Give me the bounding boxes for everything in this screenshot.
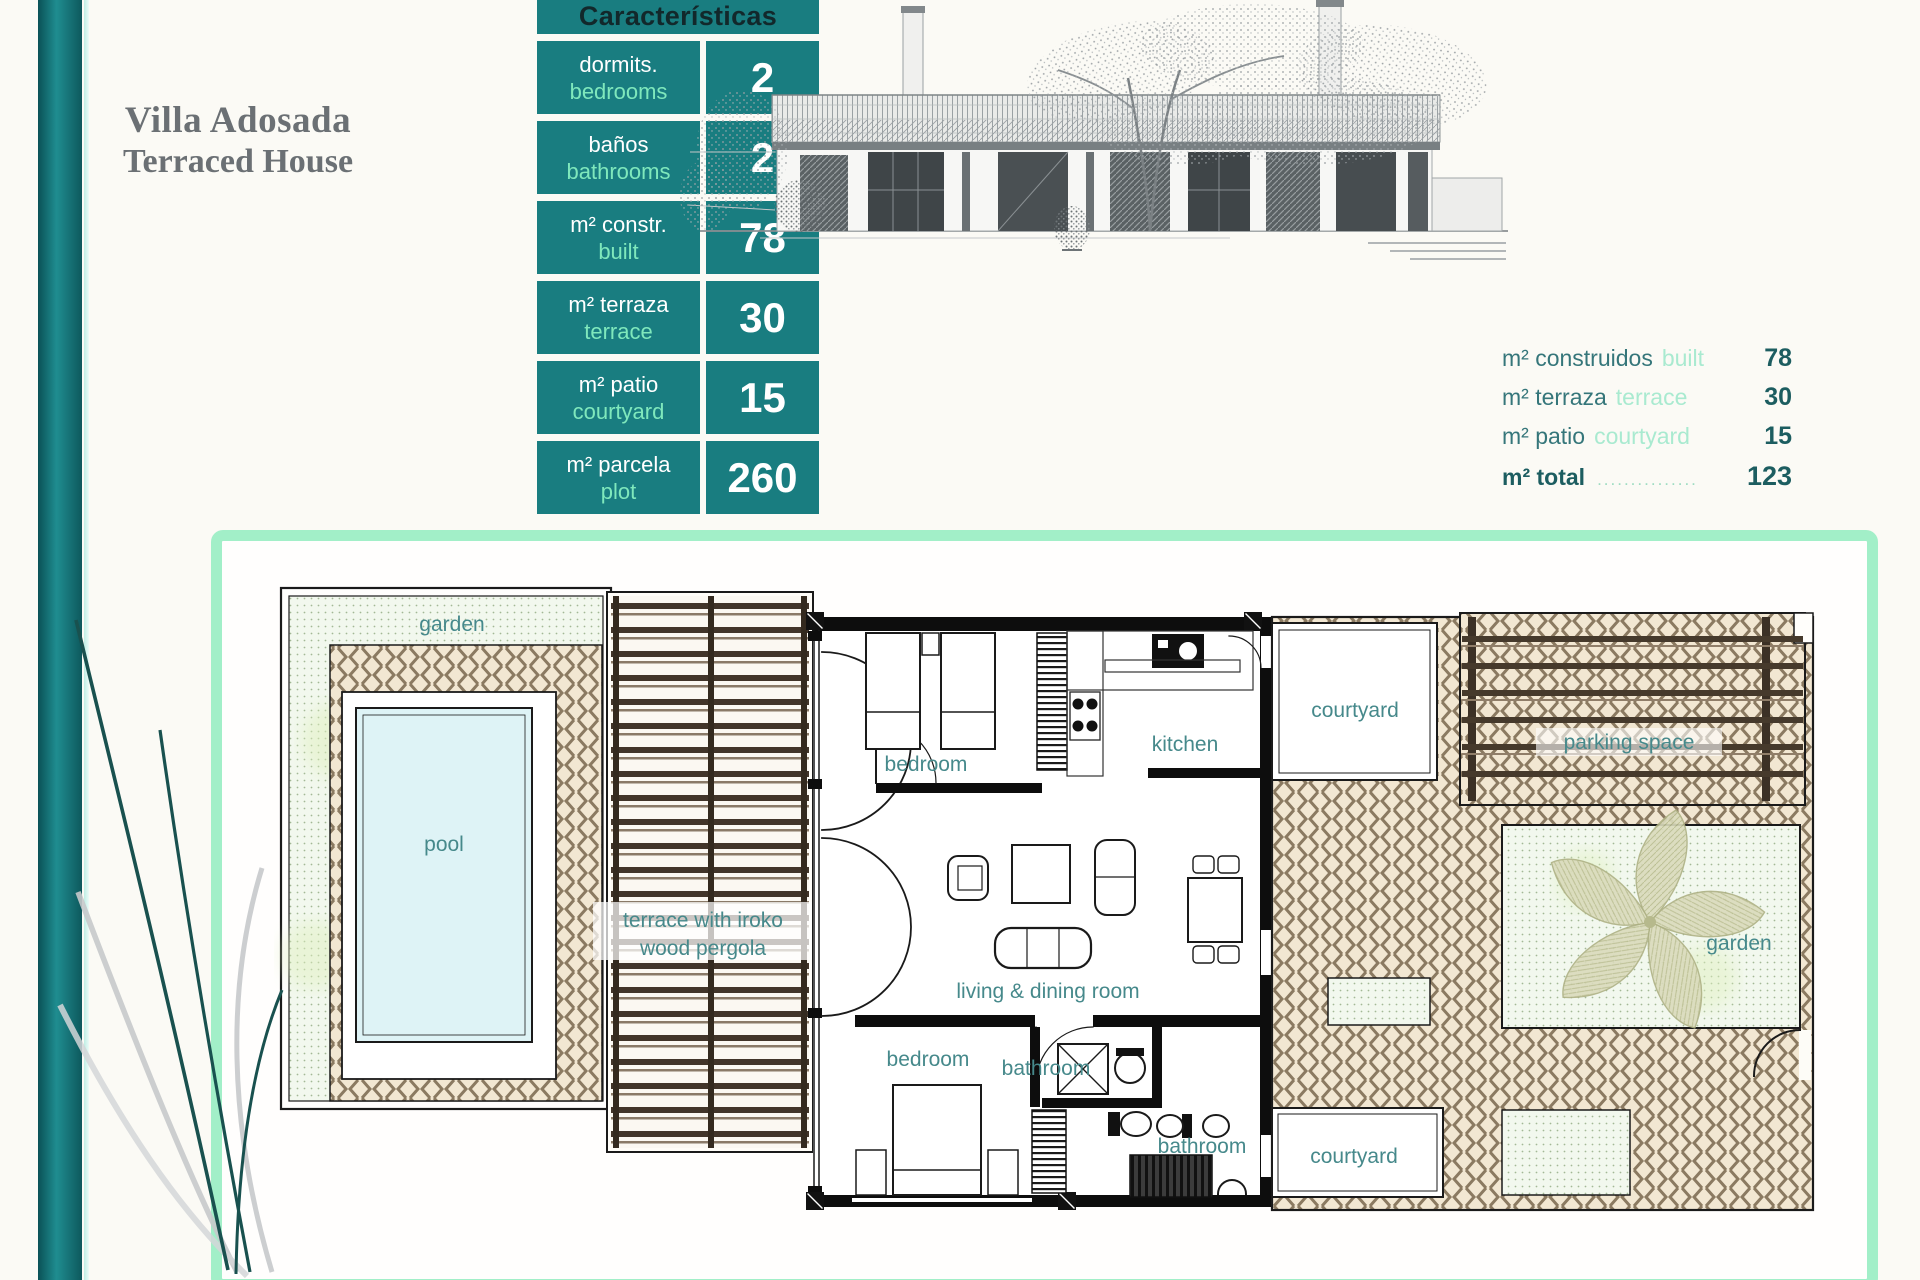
row-label-es: dormits. <box>537 51 700 78</box>
summary-value: 15 <box>1764 422 1792 451</box>
row-value: 2 <box>706 41 819 114</box>
summary-value: 78 <box>1764 344 1792 373</box>
table-row-bathrooms: baños bathrooms 2 <box>537 121 819 194</box>
row-label-en: built <box>537 238 700 265</box>
features-table: Características dormits. bedrooms 2 baño… <box>537 0 819 514</box>
summary-row-total: m² total ............... 123 <box>1502 461 1792 500</box>
summary-value: 30 <box>1764 383 1792 412</box>
row-label-es: m² patio <box>537 371 700 398</box>
row-label-en: courtyard <box>537 398 700 425</box>
row-label-en: bedrooms <box>537 78 700 105</box>
floor-plan-frame <box>211 530 1878 1280</box>
row-value: 260 <box>706 441 819 514</box>
summary-value: 123 <box>1747 461 1792 492</box>
row-label: baños bathrooms <box>537 121 700 194</box>
row-label-es: baños <box>537 131 700 158</box>
table-row-courtyard: m² patio courtyard 15 <box>537 361 819 434</box>
summary-label-en: built <box>1662 345 1704 372</box>
row-label-en: plot <box>537 478 700 505</box>
table-row-built: m² constr. built 78 <box>537 201 819 274</box>
table-row-plot: m² parcela plot 260 <box>537 441 819 514</box>
row-label: m² constr. built <box>537 201 700 274</box>
row-value: 78 <box>706 201 819 274</box>
table-row-bedrooms: dormits. bedrooms 2 <box>537 41 819 114</box>
brochure-page: Villa Adosada Terraced House Característ… <box>0 0 1920 1280</box>
row-label-es: m² terraza <box>537 291 700 318</box>
summary-row-courtyard: m² patio courtyard 15 <box>1502 422 1792 461</box>
summary-label-es: m² total <box>1502 464 1585 491</box>
area-summary: m² construidos built 78 m² terraza terra… <box>1502 344 1792 500</box>
summary-label-en: courtyard <box>1594 423 1690 450</box>
summary-label-en: terrace <box>1616 384 1688 411</box>
row-label: m² patio courtyard <box>537 361 700 434</box>
page-title: Villa Adosada Terraced House <box>88 100 388 182</box>
row-label-es: m² parcela <box>537 451 700 478</box>
page-title-english: Terraced House <box>88 142 388 182</box>
row-label: m² parcela plot <box>537 441 700 514</box>
features-table-header: Características <box>537 0 819 34</box>
row-value: 2 <box>706 121 819 194</box>
summary-label-es: m² terraza <box>1502 384 1607 411</box>
left-accent-bar <box>38 0 82 1280</box>
row-value: 15 <box>706 361 819 434</box>
summary-label-es: m² construidos <box>1502 345 1653 372</box>
row-label-en: bathrooms <box>537 158 700 185</box>
summary-label-es: m² patio <box>1502 423 1585 450</box>
dotted-leader: ............... <box>1597 470 1698 490</box>
row-value: 30 <box>706 281 819 354</box>
table-row-terrace: m² terraza terrace 30 <box>537 281 819 354</box>
left-accent-bar-highlight <box>84 0 89 1280</box>
row-label-en: terrace <box>537 318 700 345</box>
summary-row-built: m² construidos built 78 <box>1502 344 1792 383</box>
row-label: dormits. bedrooms <box>537 41 700 114</box>
page-title-spanish: Villa Adosada <box>88 100 388 142</box>
row-label: m² terraza terrace <box>537 281 700 354</box>
row-label-es: m² constr. <box>537 211 700 238</box>
summary-row-terrace: m² terraza terrace 30 <box>1502 383 1792 422</box>
